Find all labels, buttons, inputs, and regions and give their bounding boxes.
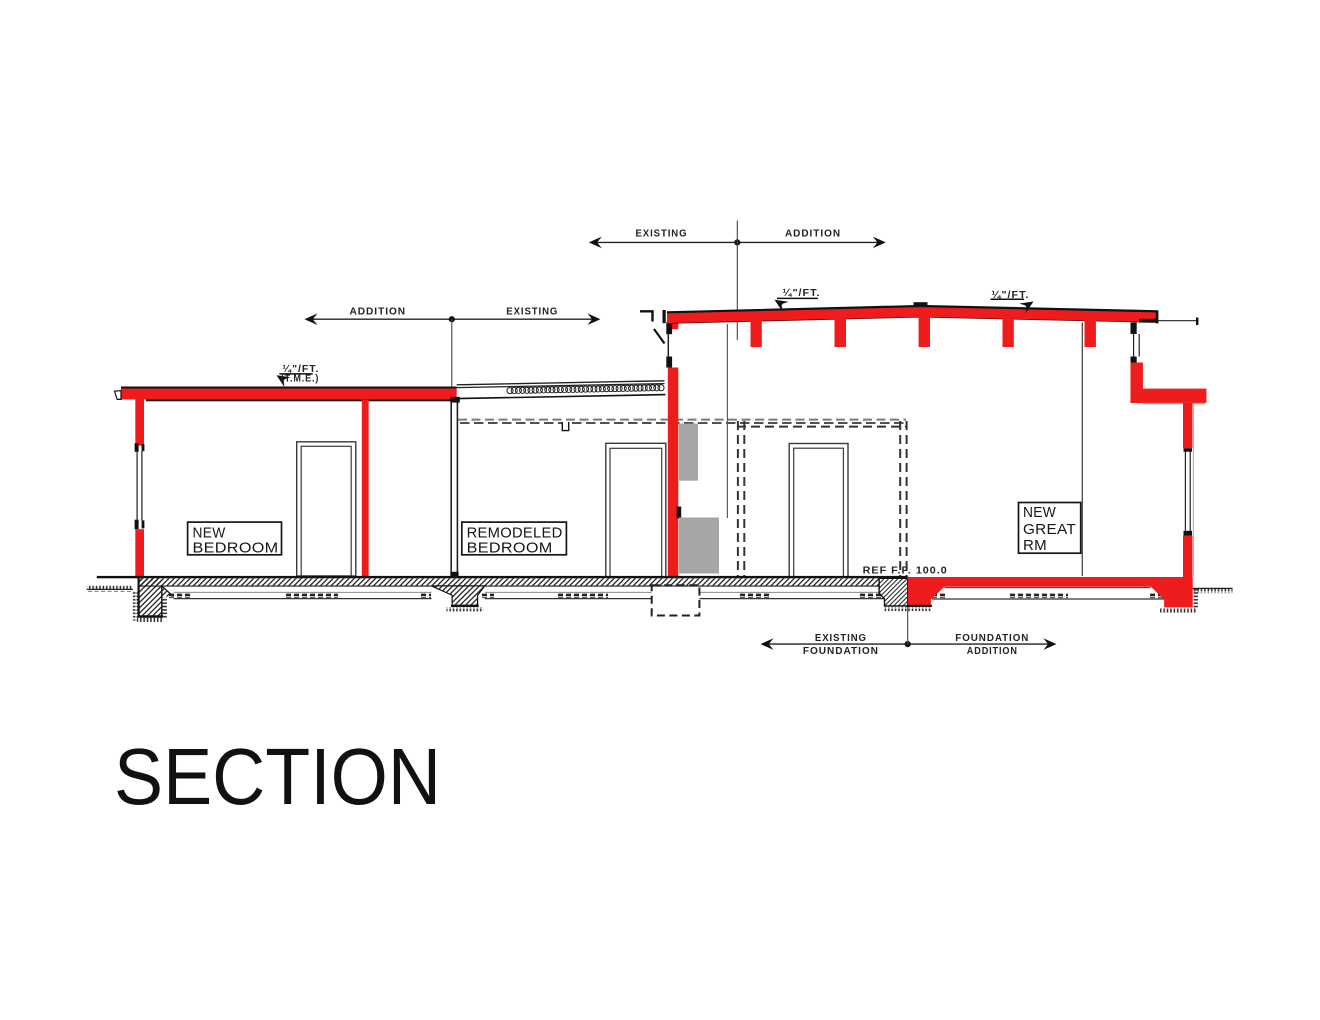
svg-text:ADDITION: ADDITION [785, 228, 841, 240]
svg-text:GREAT: GREAT [1023, 521, 1076, 538]
svg-text:NEW: NEW [1023, 504, 1056, 521]
svg-text:(T.M.E.): (T.M.E.) [281, 373, 320, 385]
svg-text:¼"/FT.: ¼"/FT. [783, 287, 821, 299]
svg-text:ADDITION: ADDITION [967, 645, 1018, 657]
svg-text:REF F.F. 100.0: REF F.F. 100.0 [863, 565, 948, 577]
svg-text:RM: RM [1023, 537, 1047, 554]
svg-text:FOUNDATION: FOUNDATION [803, 645, 879, 657]
svg-text:SECTION: SECTION [114, 732, 441, 821]
svg-text:EXISTING: EXISTING [636, 228, 688, 240]
svg-text:EXISTING: EXISTING [815, 632, 867, 644]
svg-text:EXISTING: EXISTING [506, 305, 558, 317]
svg-text:ADDITION: ADDITION [350, 305, 407, 317]
svg-text:FOUNDATION: FOUNDATION [955, 632, 1029, 644]
svg-text:BEDROOM: BEDROOM [193, 540, 279, 557]
svg-text:BEDROOM: BEDROOM [467, 540, 553, 557]
